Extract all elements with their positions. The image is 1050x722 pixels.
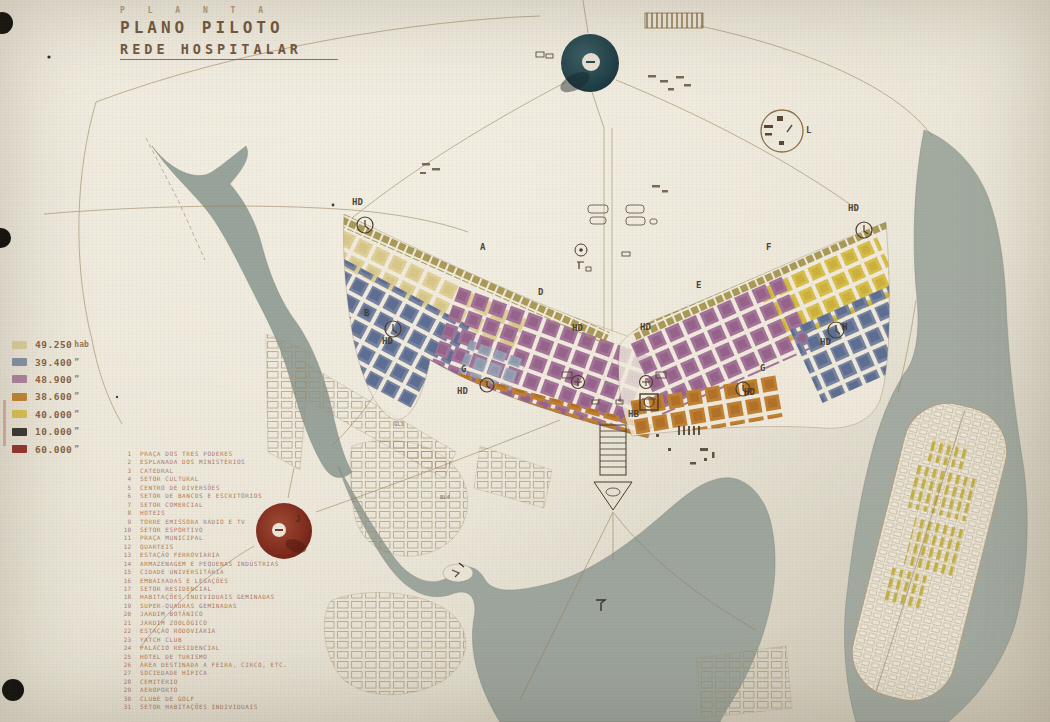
index-number: 13 (116, 551, 131, 558)
index-number: 7 (116, 501, 131, 508)
label-quadra-bl4: BL4 (440, 494, 450, 500)
index-row: 4 SETOR CULTURAL (116, 475, 287, 483)
l-circle-symbol (761, 110, 803, 152)
index-row: 28 CEMITÉRIO (116, 678, 287, 686)
index-number: 28 (116, 678, 131, 685)
index-label: CENTRO DE DIVERSÕES (140, 484, 220, 491)
legend-suffix: ” (74, 375, 79, 384)
index-row: 23 YATCH CLUB (116, 636, 287, 644)
index-number: 19 (116, 602, 131, 609)
index-label: HABITAÇÕES INDIVIDUAIS GEMINADAS (140, 593, 275, 600)
index-row: 29 AEROPORTO (116, 686, 287, 694)
label-hd-northwing-top: HD (848, 203, 859, 213)
label-sector-j: J (295, 514, 300, 524)
label-hd-south-inner: HD (457, 386, 468, 396)
label-sector-a: A (480, 242, 485, 252)
index-number: 12 (116, 543, 131, 550)
label-sector-g-south: G (461, 364, 466, 374)
legend-suffix: ” (74, 392, 79, 401)
legend-value: 40.000 (35, 409, 72, 420)
index-row: 5 CENTRO DE DIVERSÕES (116, 484, 287, 492)
index-number: 26 (116, 661, 131, 668)
legend-value: 49.250 (35, 339, 72, 350)
index-number: 5 (116, 484, 131, 491)
plan-title: PLANO PILOTO (120, 18, 338, 37)
teal-ring-symbol (557, 34, 619, 97)
index-row: 10 SETOR ESPORTIVO (116, 526, 287, 534)
index-row: 25 HOTEL DE TURISMO (116, 653, 287, 661)
legend-row: 38.600 ” (12, 388, 89, 405)
index-label: SETOR ESPORTIVO (140, 526, 203, 533)
index-row: 22 ESTAÇÃO RODOVIÁRIA (116, 627, 287, 635)
slide-plano-piloto-map: P L A N T A PLANO PILOTO REDE HOSPITALAR… (0, 0, 1050, 722)
legend-color-swatch (12, 358, 27, 366)
index-row: 31 SETOR HABITAÇÕES INDIVIDUAIS (116, 703, 287, 711)
index-label: CIDADE UNIVERSITÁRIA (140, 568, 224, 575)
index-row: 15 CIDADE UNIVERSITÁRIA (116, 568, 287, 576)
index-label: CEMITÉRIO (140, 678, 178, 685)
index-number: 2 (116, 458, 131, 465)
index-label: SETOR RESIDENCIAL (140, 585, 212, 592)
index-label: YATCH CLUB (140, 636, 182, 643)
index-label: JARDIM BOTÂNICO (140, 610, 203, 617)
index-label: PRAÇA DOS TRES PODERES (140, 450, 233, 457)
legend-suffix: ” (74, 410, 79, 419)
plan-kicker: P L A N T A (120, 6, 338, 15)
index-number: 9 (116, 518, 131, 525)
index-row: 16 EMBAIXADAS E LEGAÇÕES (116, 577, 287, 585)
index-row: 27 SOCIEDADE HÍPICA (116, 669, 287, 677)
index-number: 15 (116, 568, 131, 575)
label-hd-southwing-top: HD (352, 197, 363, 207)
label-sector-h: H (842, 322, 847, 332)
legend-row: 48.900 ” (12, 371, 89, 388)
index-label: SETOR CULTURAL (140, 475, 199, 482)
label-sector-l: L (806, 125, 811, 135)
map-index-list: 1 PRAÇA DOS TRES PODERES 2 ESPLANADA DOS… (116, 450, 287, 712)
legend-value: 10.000 (35, 426, 72, 437)
label-sector-d: D (538, 287, 543, 297)
index-number: 3 (116, 467, 131, 474)
legend-row: 39.400 ” (12, 353, 89, 370)
legend-row: 40.000 ” (12, 406, 89, 423)
index-row: 1 PRAÇA DOS TRES PODERES (116, 450, 287, 458)
label-hd-northwing-low: HD (820, 337, 831, 347)
index-number: 25 (116, 653, 131, 660)
index-label: ESTAÇÃO RODOVIÁRIA (140, 627, 216, 634)
index-number: 21 (116, 619, 131, 626)
index-number: 29 (116, 686, 131, 693)
index-label: PALÁCIO RESIDENCIAL (140, 644, 220, 651)
legend-suffix: ” (74, 358, 79, 367)
label-hd-southwing-low: HD (382, 336, 393, 346)
legend-color-swatch (12, 341, 27, 349)
label-hd-north-inner: HD (744, 387, 755, 397)
index-label: SETOR DE BANCOS E ESCRITÓRIOS (140, 492, 262, 499)
index-number: 18 (116, 593, 131, 600)
legend-color-swatch (12, 375, 27, 383)
label-quadra-gl3: GL3 (394, 421, 404, 427)
index-row: 9 TORRE EMISSORA RÁDIO E TV (116, 518, 287, 526)
index-label: TORRE EMISSORA RÁDIO E TV (140, 518, 245, 525)
index-label: SETOR HABITAÇÕES INDIVIDUAIS (140, 703, 258, 710)
index-label: ÁREA DESTINADA A FEIRA, CIRCO, ETC. (140, 661, 287, 668)
legend-value: 38.600 (35, 391, 72, 402)
index-number: 27 (116, 669, 131, 676)
index-row: 18 HABITAÇÕES INDIVIDUAIS GEMINADAS (116, 593, 287, 601)
index-row: 12 QUARTEIS (116, 543, 287, 551)
legend-suffix: hab (74, 340, 88, 349)
index-number: 17 (116, 585, 131, 592)
index-number: 1 (116, 450, 131, 457)
index-row: 19 SUPER-QUADRAS GEMINADAS (116, 602, 287, 610)
title-block: P L A N T A PLANO PILOTO REDE HOSPITALAR (120, 6, 338, 60)
index-label: CATEDRAL (140, 467, 174, 474)
index-row: 20 JARDIM BOTÂNICO (116, 610, 287, 618)
legend-row: 60.000 ” (12, 440, 89, 457)
index-number: 11 (116, 534, 131, 541)
index-number: 31 (116, 703, 131, 710)
legend-value: 60.000 (35, 444, 72, 455)
index-row: 6 SETOR DE BANCOS E ESCRITÓRIOS (116, 492, 287, 500)
label-hd-center-right: HD (640, 322, 651, 332)
north-wing-superquadras (619, 216, 933, 442)
index-label: ESTAÇÃO FERROVIÁRIA (140, 551, 220, 558)
legend-suffix: ” (74, 427, 79, 436)
index-row: 24 PALÁCIO RESIDENCIAL (116, 644, 287, 652)
index-row: 13 ESTAÇÃO FERROVIÁRIA (116, 551, 287, 559)
index-row: 7 SETOR COMERCIAL (116, 501, 287, 509)
legend-color-swatch (12, 428, 27, 436)
index-label: JARDIM ZOOLÓGICO (140, 619, 207, 626)
legend-color-swatch (12, 393, 27, 401)
index-number: 30 (116, 695, 131, 702)
index-number: 16 (116, 577, 131, 584)
index-number: 8 (116, 509, 131, 516)
index-label: PRAÇA MUNICIPAL (140, 534, 203, 541)
index-label: ESPLANADA DOS MINISTÉRIOS (140, 458, 245, 465)
index-number: 10 (116, 526, 131, 533)
legend-row: 10.000 ” (12, 423, 89, 440)
index-label: CLUBE DE GOLF (140, 695, 195, 702)
index-label: SETOR COMERCIAL (140, 501, 203, 508)
label-sector-e: E (696, 280, 701, 290)
index-number: 23 (116, 636, 131, 643)
index-row: 2 ESPLANADA DOS MINISTÉRIOS (116, 458, 287, 466)
index-number: 20 (116, 610, 131, 617)
index-label: HOTEL DE TURISMO (140, 653, 207, 660)
legend-color-swatch (12, 445, 27, 453)
title-underline (120, 59, 338, 60)
index-row: 26 ÁREA DESTINADA A FEIRA, CIRCO, ETC. (116, 661, 287, 669)
index-number: 22 (116, 627, 131, 634)
index-row: 14 ARMAZENAGEM E PEQUENAS INDÚSTRIAS (116, 560, 287, 568)
index-number: 6 (116, 492, 131, 499)
legend-suffix: ” (74, 445, 79, 454)
index-number: 14 (116, 560, 131, 567)
index-row: 11 PRAÇA MUNICIPAL (116, 534, 287, 542)
label-hd-center-left: HD (572, 323, 583, 333)
index-row: 30 CLUBE DE GOLF (116, 695, 287, 703)
index-label: EMBAIXADAS E LEGAÇÕES (140, 577, 228, 584)
index-label: AEROPORTO (140, 686, 178, 693)
legend-value: 48.900 (35, 374, 72, 385)
index-row: 8 HOTEIS (116, 509, 287, 517)
index-label: SOCIEDADE HÍPICA (140, 669, 207, 676)
legend-row: 49.250 hab (12, 336, 89, 353)
legend-color-swatch (12, 410, 27, 418)
index-row: 21 JARDIM ZOOLÓGICO (116, 619, 287, 627)
label-hb-base-hospital: HB (628, 409, 639, 419)
label-sector-b: B (364, 308, 369, 318)
index-label: HOTEIS (140, 509, 165, 516)
creek (152, 146, 352, 478)
index-label: QUARTEIS (140, 543, 174, 550)
legend-value: 39.400 (35, 357, 72, 368)
plan-subtitle: REDE HOSPITALAR (120, 41, 338, 57)
index-number: 4 (116, 475, 131, 482)
index-number: 24 (116, 644, 131, 651)
population-legend: 49.250 hab 39.400 ” 48.900 ” 38.600 ” (12, 336, 89, 458)
index-row: 17 SETOR RESIDENCIAL (116, 585, 287, 593)
index-label: SUPER-QUADRAS GEMINADAS (140, 602, 237, 609)
label-sector-f: F (766, 242, 771, 252)
index-label: ARMAZENAGEM E PEQUENAS INDÚSTRIAS (140, 560, 279, 567)
index-row: 3 CATEDRAL (116, 467, 287, 475)
label-sector-g-north: G (760, 363, 765, 373)
